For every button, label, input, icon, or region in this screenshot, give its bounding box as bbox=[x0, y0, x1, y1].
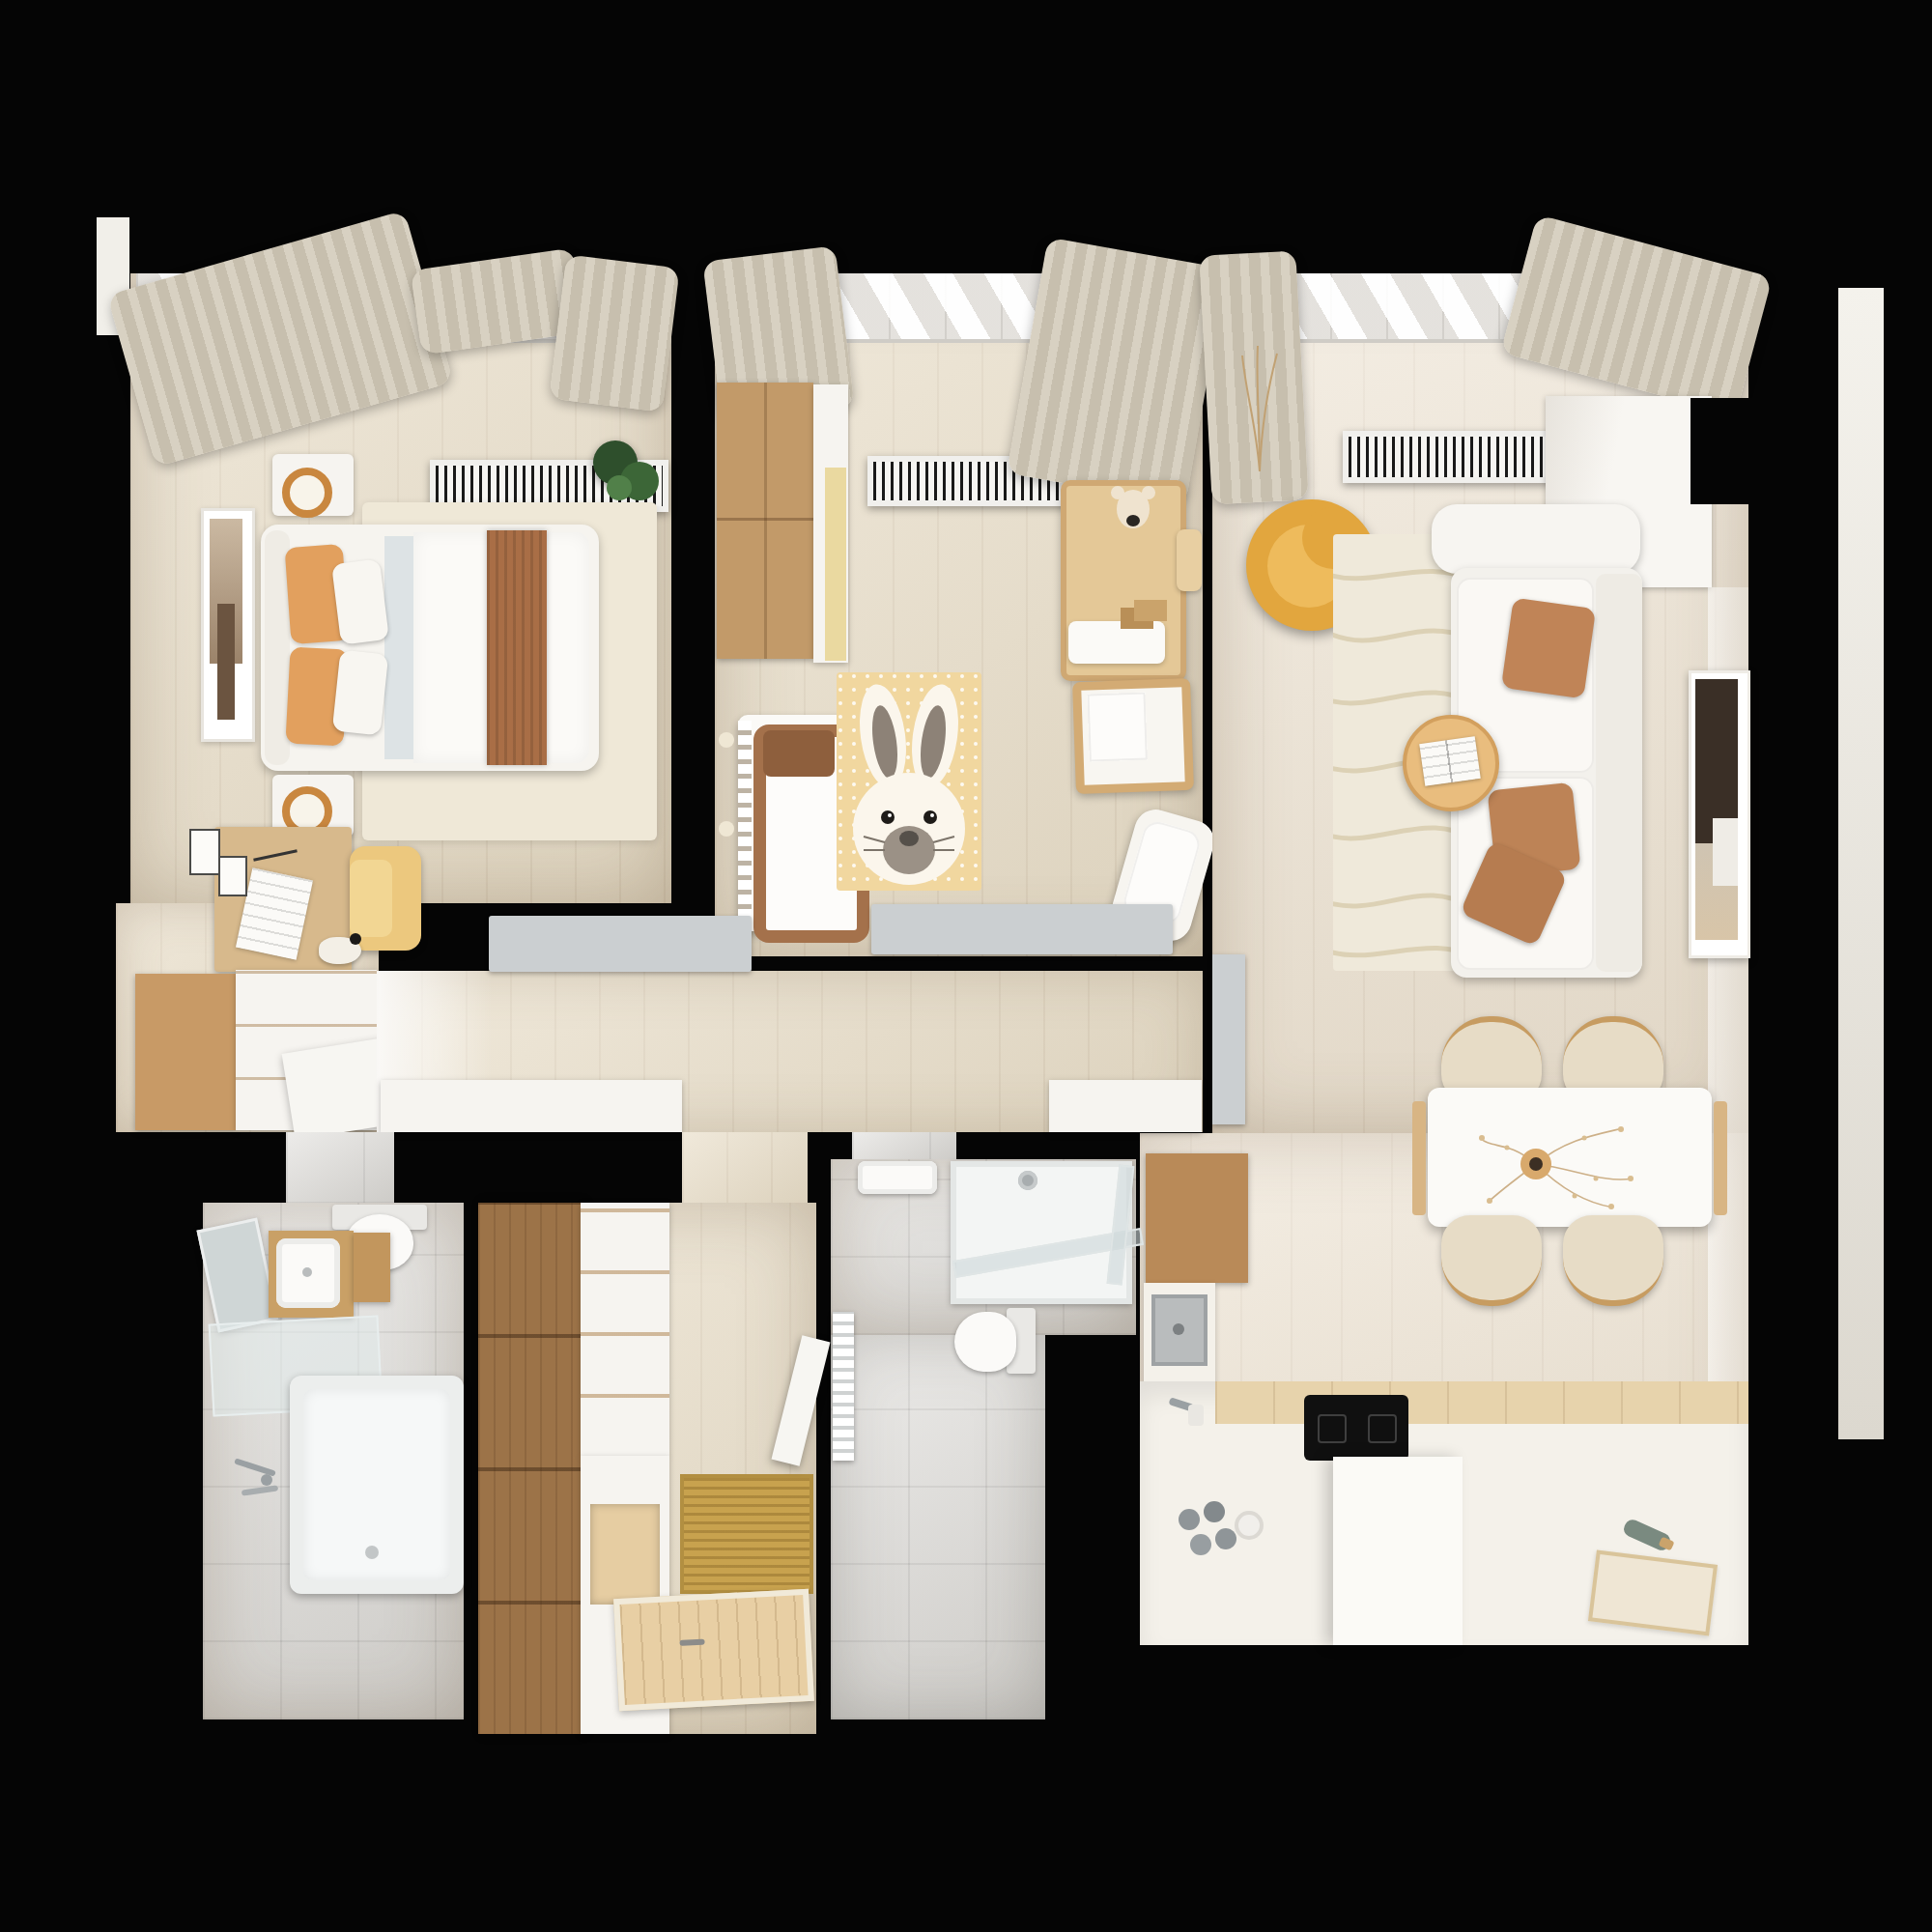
small-wall-frame-2 bbox=[218, 856, 247, 896]
room-bathroom-2-bottom bbox=[831, 1335, 1045, 1719]
bunny-rug bbox=[837, 672, 981, 891]
dining-chair-bottom-left bbox=[1441, 1215, 1542, 1306]
vase-dried-flowers bbox=[1468, 1111, 1662, 1217]
yellow-door bbox=[825, 468, 846, 661]
cutting-board bbox=[1588, 1550, 1718, 1636]
kitchen-island bbox=[1333, 1457, 1463, 1645]
open-book bbox=[1419, 736, 1481, 786]
wall-notch bbox=[1690, 398, 1756, 504]
dining-chair-bottom-right bbox=[1563, 1215, 1663, 1306]
doorway-bathroom-1 bbox=[286, 1132, 394, 1204]
kitchen-wood-strip bbox=[1215, 1381, 1748, 1424]
nursery-wardrobe bbox=[717, 383, 813, 659]
toilet-2 bbox=[954, 1304, 1041, 1379]
bathroom-1-wood-cabinet bbox=[354, 1233, 390, 1302]
bathroom-2-radiator bbox=[833, 1312, 854, 1461]
bathroom-2-sink bbox=[858, 1161, 937, 1194]
nursery-wall-lamp-1 bbox=[719, 732, 734, 748]
bottle-group bbox=[1175, 1499, 1267, 1600]
nursery-gray-sideboard bbox=[871, 904, 1173, 954]
bathtub bbox=[290, 1376, 464, 1594]
doorway-closet bbox=[682, 1132, 808, 1204]
cushion-terracotta-1 bbox=[1501, 597, 1596, 698]
pillow-white-top bbox=[331, 558, 389, 644]
nursery-side-cabinet bbox=[813, 384, 848, 663]
bedroom-wall-art bbox=[201, 508, 255, 742]
wood-slat-mat bbox=[613, 1589, 814, 1711]
hallway-side-band bbox=[1049, 1080, 1202, 1132]
kitchen-sink bbox=[1151, 1294, 1207, 1366]
doorway-bathroom-2 bbox=[852, 1132, 956, 1161]
basin bbox=[276, 1238, 340, 1308]
brown-throw-blanket bbox=[487, 530, 547, 765]
pencil bbox=[253, 849, 298, 861]
sofa-back bbox=[1596, 574, 1642, 972]
toy-blocks bbox=[1134, 600, 1167, 621]
nursery-small-chair bbox=[1177, 529, 1202, 591]
gray-appliance-column bbox=[1212, 954, 1245, 1124]
dresser-wood-panel bbox=[135, 974, 236, 1130]
dried-grass-decor bbox=[1235, 336, 1285, 471]
closet-wardrobe-column bbox=[478, 1203, 581, 1734]
kitchen-faucet bbox=[1165, 1395, 1209, 1430]
double-bed bbox=[261, 525, 599, 771]
jute-mat bbox=[680, 1474, 813, 1594]
bedroom-curtain-right bbox=[549, 254, 679, 412]
pillow-white-bottom bbox=[332, 650, 389, 736]
changing-table bbox=[1061, 480, 1186, 681]
floor-plan bbox=[0, 0, 1932, 1932]
kitchen-tall-cabinet bbox=[1146, 1153, 1248, 1283]
coffee-table bbox=[1403, 715, 1499, 811]
table-rail-right bbox=[1714, 1101, 1727, 1215]
nursery-wall-lamp-2 bbox=[719, 821, 734, 837]
table-rail-left bbox=[1412, 1101, 1426, 1215]
shower-head bbox=[1018, 1171, 1037, 1190]
bathroom-1-vanity bbox=[269, 1231, 354, 1318]
white-ledge-right bbox=[1838, 288, 1884, 1439]
play-table bbox=[1072, 678, 1194, 794]
sofa-top-armrest bbox=[1432, 504, 1640, 574]
wall-faucet bbox=[228, 1455, 290, 1522]
crib-slats-left bbox=[738, 721, 752, 925]
tall-artwork bbox=[1689, 670, 1750, 958]
shower-tray bbox=[951, 1161, 1132, 1304]
white-tray bbox=[1068, 621, 1165, 664]
lamp bbox=[282, 468, 332, 518]
hallway-gray-bench bbox=[489, 916, 752, 972]
bird-figurine bbox=[319, 937, 361, 964]
teddy-bear bbox=[1117, 490, 1150, 528]
yellow-desk-chair bbox=[350, 846, 421, 951]
closet-drawer-unit bbox=[581, 1203, 669, 1456]
induction-cooktop bbox=[1304, 1395, 1408, 1461]
crib-pillow bbox=[763, 730, 835, 777]
open-niche bbox=[590, 1504, 660, 1605]
hallway-low-cabinet bbox=[381, 1080, 682, 1132]
small-wall-frame-1 bbox=[189, 829, 220, 875]
potted-plant bbox=[587, 433, 665, 510]
nightstand-top bbox=[272, 454, 354, 516]
